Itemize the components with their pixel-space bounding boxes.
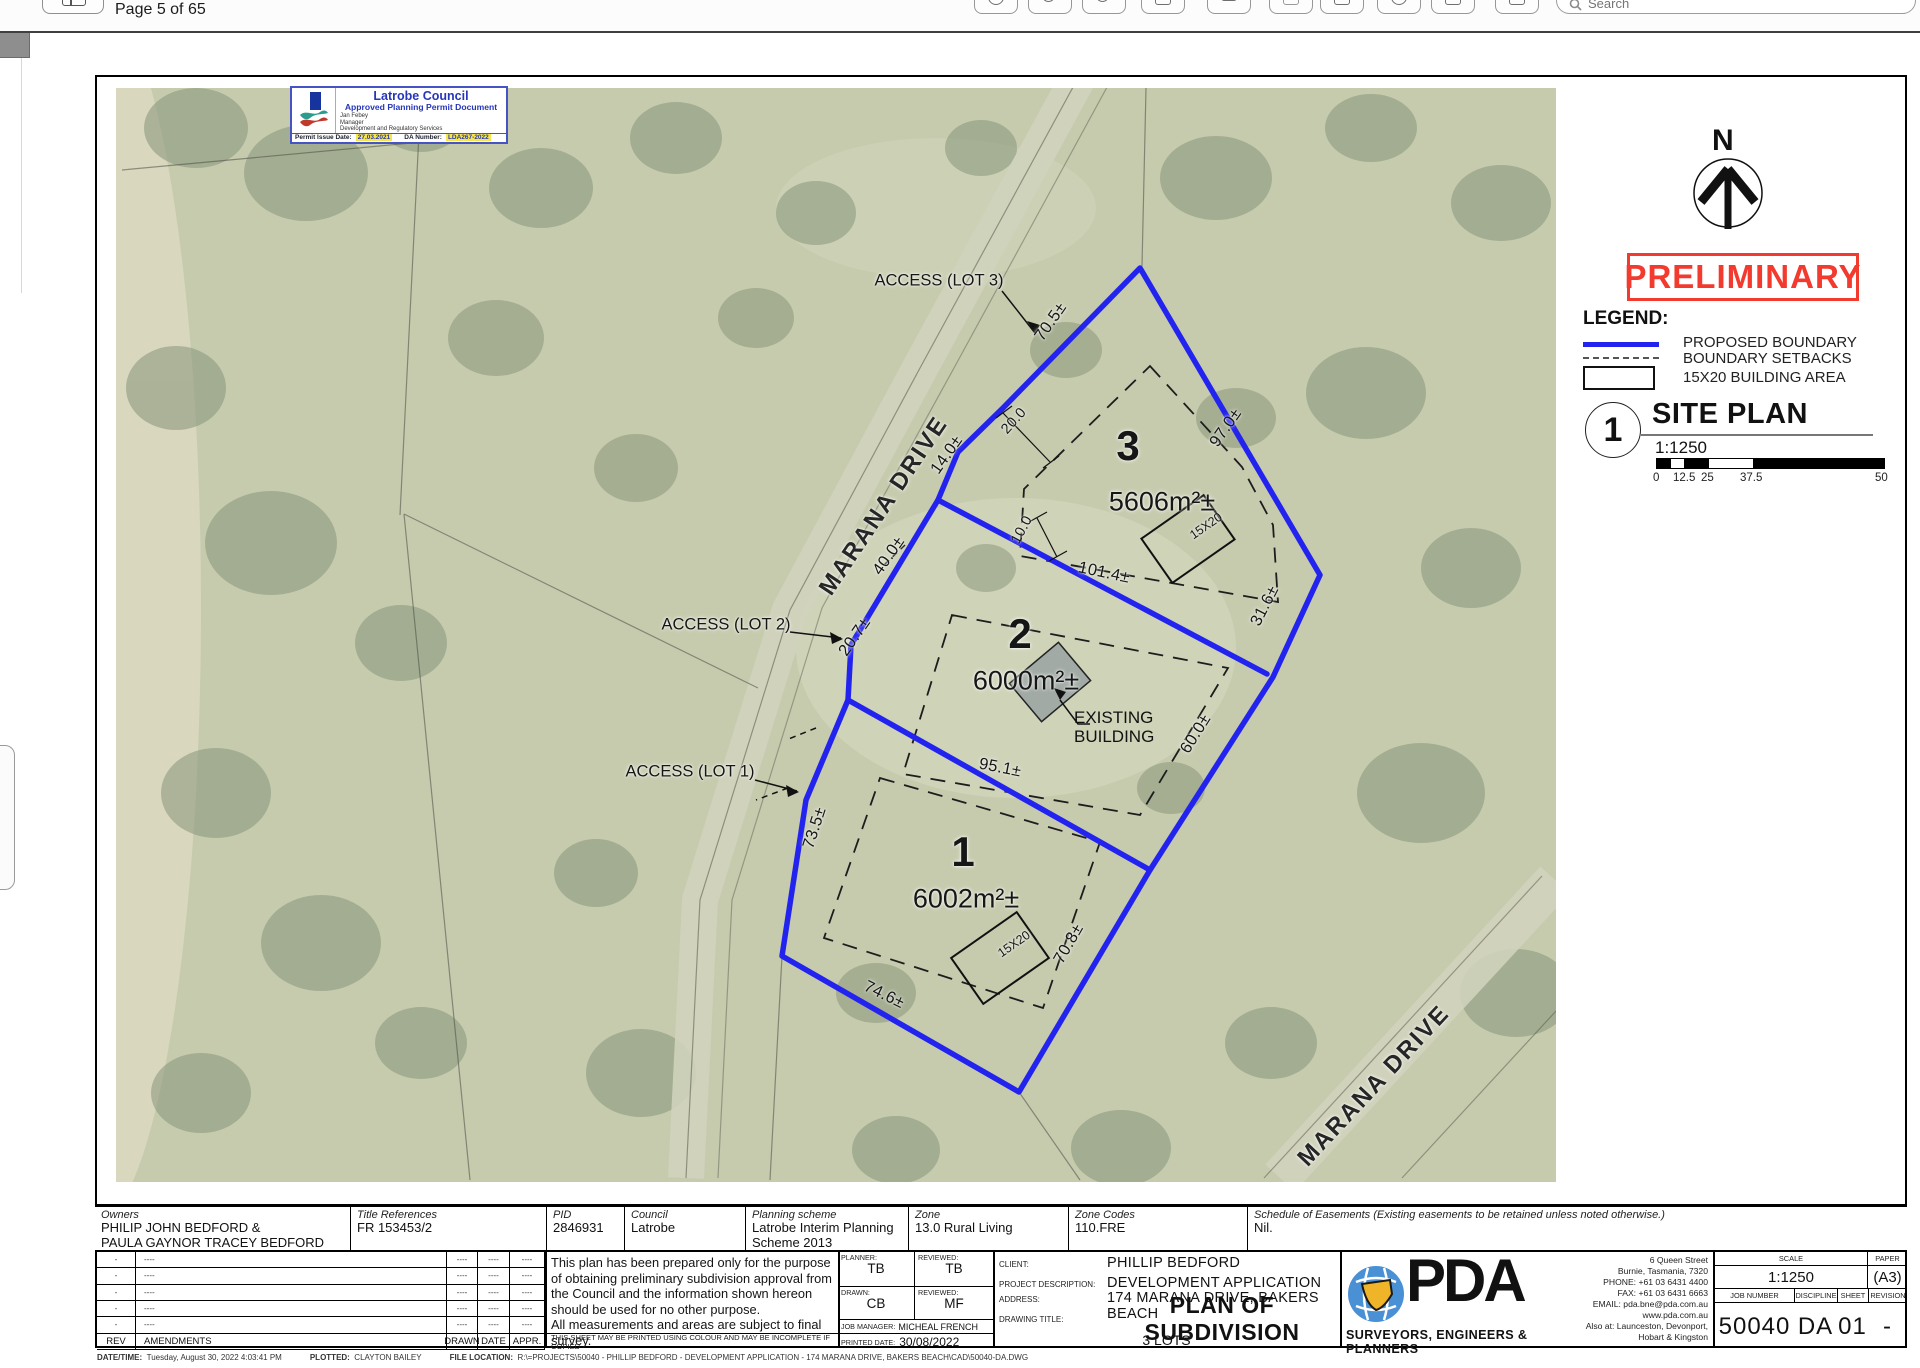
legend-setback-label: BOUNDARY SETBACKS — [1683, 350, 1852, 367]
disclaimer-panel: This plan has been prepared only for the… — [545, 1252, 838, 1350]
date-cell: ---- — [478, 1301, 510, 1317]
toolbar: Page 5 of 65 — [0, 0, 1920, 33]
drawn-header: DRAWN — [447, 1334, 478, 1350]
owners-value-2: PAULA GAYNOR TRACEY BEDFORD — [101, 1236, 344, 1251]
project-label: PROJECT DESCRIPTION: — [999, 1280, 1107, 1289]
note-icon — [1445, 0, 1461, 5]
pda-contact-line: Burnie, Tasmania, 7320 — [1572, 1266, 1708, 1277]
sheet-header: SHEET — [1837, 1289, 1868, 1303]
pda-contact: 6 Queen Street Burnie, Tasmania, 7320 PH… — [1572, 1255, 1708, 1343]
datetime-value: Tuesday, August 30, 2022 4:03:41 PM — [147, 1353, 282, 1362]
stamp-issue-date: 27.03.2021 — [356, 134, 393, 141]
sidebar-toggle-button[interactable] — [42, 0, 104, 14]
date-cell: ---- — [478, 1252, 510, 1268]
highlighter-icon — [1221, 0, 1237, 1]
discipline-header: DISCIPLINE — [1794, 1289, 1837, 1303]
address-label: ADDRESS: — [999, 1295, 1107, 1304]
rev-cell: - — [97, 1317, 136, 1333]
note-button[interactable] — [1431, 0, 1475, 14]
scale-value: 1:1250 — [1715, 1266, 1867, 1289]
legend-title: LEGEND: — [1583, 308, 1669, 330]
zoom-out-button[interactable] — [1028, 0, 1072, 14]
rev-cell: - — [97, 1285, 136, 1301]
scale-header: SCALE — [1715, 1252, 1867, 1266]
zoom-in-icon — [1096, 0, 1109, 2]
text-icon — [1283, 0, 1299, 5]
pda-globe-icon — [1346, 1264, 1406, 1324]
search-input[interactable] — [1588, 0, 1868, 11]
scale-tick-12-5: 12.5 — [1673, 472, 1695, 484]
zone-value: 13.0 Rural Living — [915, 1221, 1062, 1236]
title-block: - ---- ---- ---- ---- - ---- ---- ---- -… — [95, 1250, 1907, 1348]
print-note: THIS SHEET MAY BE PRINTED USING COLOUR A… — [545, 1333, 838, 1350]
shape-icon — [1334, 0, 1350, 5]
disclaimer-text-1: This plan has been prepared only for the… — [551, 1255, 832, 1317]
job-number-value: 50040 — [1715, 1303, 1794, 1350]
date-cell: ---- — [478, 1317, 510, 1333]
pda-contact-line: 6 Queen Street — [1572, 1255, 1708, 1266]
drawn-cell: ---- — [447, 1285, 478, 1301]
plot-status-line: DATE/TIME: Tuesday, August 30, 2022 4:03… — [97, 1353, 1056, 1362]
date-cell: ---- — [478, 1285, 510, 1301]
appr-cell: ---- — [510, 1268, 545, 1284]
appr-cell: ---- — [510, 1317, 545, 1333]
job-manager-label: JOB MANAGER: — [841, 1322, 895, 1331]
preview-window: { "window": { "page_indicator": "Page 5 … — [0, 0, 1920, 1368]
site-plan-number-badge: 1 — [1585, 402, 1641, 458]
appr-cell: ---- — [510, 1285, 545, 1301]
drawn-cell: ---- — [447, 1317, 478, 1333]
file-location-value: R:\=PROJECTS\50040 - PHILLIP BEDFORD - D… — [517, 1353, 1028, 1362]
share-icon — [1509, 0, 1525, 5]
drawing-title-label: DRAWING TITLE: — [999, 1315, 1107, 1324]
reviewed1-value: TB — [918, 1262, 990, 1275]
easements-value: Nil. — [1254, 1221, 1899, 1236]
scale-tick-50: 50 — [1875, 472, 1888, 484]
site-plan-drawing — [116, 88, 1556, 1182]
amend-cell: ---- — [136, 1285, 447, 1301]
appr-cell: ---- — [510, 1252, 545, 1268]
legend-proposed-boundary-label: PROPOSED BOUNDARY — [1683, 334, 1857, 351]
north-arrow-icon — [1691, 155, 1765, 231]
reviewed2-value: MF — [918, 1297, 990, 1310]
legend-building-area-label: 15X20 BUILDING AREA — [1683, 369, 1846, 386]
drawn-value: CB — [841, 1297, 911, 1310]
page-icon — [1155, 0, 1171, 5]
latrobe-council-logo-icon — [292, 88, 336, 133]
rotate-icon — [988, 0, 1004, 5]
paper-header: PAPER — [1867, 1252, 1907, 1266]
scale-tick-0: 0 — [1653, 472, 1659, 484]
amend-cell: ---- — [136, 1252, 447, 1268]
zoom-out-icon — [1042, 0, 1055, 2]
highlight-button[interactable] — [1207, 0, 1251, 14]
share-button[interactable] — [1495, 0, 1539, 14]
page-indicator: Page 5 of 65 — [115, 1, 206, 19]
stamp-da-number: LDA267-2022 — [446, 134, 491, 141]
rev-cell: - — [97, 1268, 136, 1284]
paper-value: (A3) — [1867, 1266, 1907, 1289]
rotate-button[interactable] — [974, 0, 1018, 14]
legend-proposed-boundary-swatch — [1583, 342, 1659, 347]
preliminary-watermark: PRELIMINARY — [1627, 253, 1859, 301]
owners-value-1: PHILIP JOHN BEDFORD & — [101, 1221, 344, 1236]
search-field[interactable] — [1556, 0, 1916, 14]
staff-grid: PLANNER: TB REVIEWED: TB DRAWN: CB REVIE… — [838, 1252, 993, 1350]
scale-tick-37-5: 37.5 — [1740, 472, 1762, 484]
legend-building-area-swatch — [1583, 366, 1655, 390]
text-tool-button[interactable] — [1269, 0, 1313, 14]
client-label: CLIENT: — [999, 1260, 1107, 1269]
amendments-header: AMENDMENTS — [136, 1334, 447, 1350]
pda-contact-line: www.pda.com.au — [1572, 1310, 1708, 1321]
datetime-label: DATE/TIME: — [97, 1353, 142, 1362]
pda-contact-line: FAX: +61 03 6431 6663 — [1572, 1288, 1708, 1299]
stamp-da-label: DA Number: — [404, 134, 442, 141]
easements-header: Schedule of Easements (Existing easement… — [1254, 1209, 1899, 1221]
drawn-cell: ---- — [447, 1301, 478, 1317]
site-plan-title: SITE PLAN — [1652, 398, 1808, 431]
printed-date-label: PRINTED DATE: — [841, 1338, 895, 1347]
plotted-value: CLAYTON BAILEY — [354, 1353, 421, 1362]
pda-tagline: SURVEYORS, ENGINEERS & PLANNERS — [1346, 1328, 1572, 1356]
amend-cell: ---- — [136, 1301, 447, 1317]
north-label: N — [1712, 124, 1734, 158]
property-info-table: Owners PHILIP JOHN BEDFORD & PAULA GAYNO… — [95, 1204, 1907, 1250]
title-refs-value: FR 153453/2 — [357, 1221, 540, 1236]
scale-tick-25: 25 — [1701, 472, 1714, 484]
pid-value: 2846931 — [553, 1221, 618, 1236]
shapes-button[interactable] — [1320, 0, 1364, 14]
revision-header: REVISION — [1868, 1289, 1907, 1303]
council-approval-stamp: Latrobe Council Approved Planning Permit… — [290, 86, 508, 144]
job-manager-value: MICHEAL FRENCH — [898, 1322, 978, 1332]
thumbnail-view-button[interactable] — [1141, 0, 1185, 14]
revision-table: - ---- ---- ---- ---- - ---- ---- ---- -… — [97, 1252, 545, 1350]
scale-bar — [1656, 458, 1885, 469]
pen-icon — [1391, 0, 1407, 5]
client-panel: CLIENT: PHILLIP BEDFORD PROJECT DESCRIPT… — [993, 1252, 1340, 1350]
pda-wordmark: PDA — [1406, 1246, 1524, 1315]
date-header: DATE — [478, 1334, 510, 1350]
drawn-cell: ---- — [447, 1252, 478, 1268]
aerial-photo — [116, 88, 1556, 1182]
sheet-value: 01 — [1837, 1303, 1868, 1350]
date-cell: ---- — [478, 1268, 510, 1284]
drawn-cell: ---- — [447, 1268, 478, 1284]
zone-codes-value: 110.FRE — [1075, 1221, 1241, 1236]
council-value: Latrobe — [631, 1221, 739, 1236]
file-location-label: FILE LOCATION: — [450, 1353, 513, 1362]
amend-cell: ---- — [136, 1268, 447, 1284]
zoom-in-button[interactable] — [1082, 0, 1126, 14]
amend-cell: ---- — [136, 1317, 447, 1333]
rev-header: REV — [97, 1334, 136, 1350]
lot1-building-area — [951, 912, 1049, 1004]
rev-cell: - — [97, 1252, 136, 1268]
legend-setback-swatch — [1583, 357, 1659, 359]
sidebar-icon — [62, 0, 86, 6]
window-corner-fill — [0, 33, 30, 58]
stamp-issue-label: Permit Issue Date: — [295, 134, 352, 141]
rev-cell: - — [97, 1301, 136, 1317]
job-number-header: JOB NUMBER — [1715, 1289, 1794, 1303]
planning-value-2: Scheme 2013 — [752, 1236, 902, 1251]
markup-button[interactable] — [1377, 0, 1421, 14]
printed-date-value: 30/08/2022 — [899, 1335, 959, 1349]
pda-contact-line: Also at: Launceston, Devonport, — [1572, 1321, 1708, 1332]
planning-value-1: Latrobe Interim Planning — [752, 1221, 902, 1236]
pda-contact-line: Hobart & Kingston — [1572, 1332, 1708, 1343]
planner-value: TB — [841, 1262, 911, 1275]
appr-cell: ---- — [510, 1301, 545, 1317]
pda-contact-line: EMAIL: pda.bne@pda.com.au — [1572, 1299, 1708, 1310]
appr-header: APPR. — [510, 1334, 545, 1350]
pda-contact-line: PHONE: +61 03 6431 4400 — [1572, 1277, 1708, 1288]
revision-value: - — [1868, 1303, 1907, 1350]
site-plan-rule — [1641, 434, 1873, 436]
left-rail-divider — [21, 33, 22, 293]
plotted-label: PLOTTED: — [310, 1353, 350, 1362]
pda-logo-block: PDA SURVEYORS, ENGINEERS & PLANNERS — [1340, 1252, 1572, 1350]
sidebar-drag-tab[interactable] — [0, 745, 15, 890]
discipline-value: DA — [1794, 1303, 1837, 1350]
stamp-subtitle: Approved Planning Permit Document — [340, 103, 502, 112]
search-icon — [1569, 0, 1582, 11]
site-plan-scale: 1:1250 — [1655, 438, 1707, 458]
project-value: DEVELOPMENT APPLICATION — [1107, 1275, 1321, 1291]
client-value: PHILLIP BEDFORD — [1107, 1255, 1240, 1271]
